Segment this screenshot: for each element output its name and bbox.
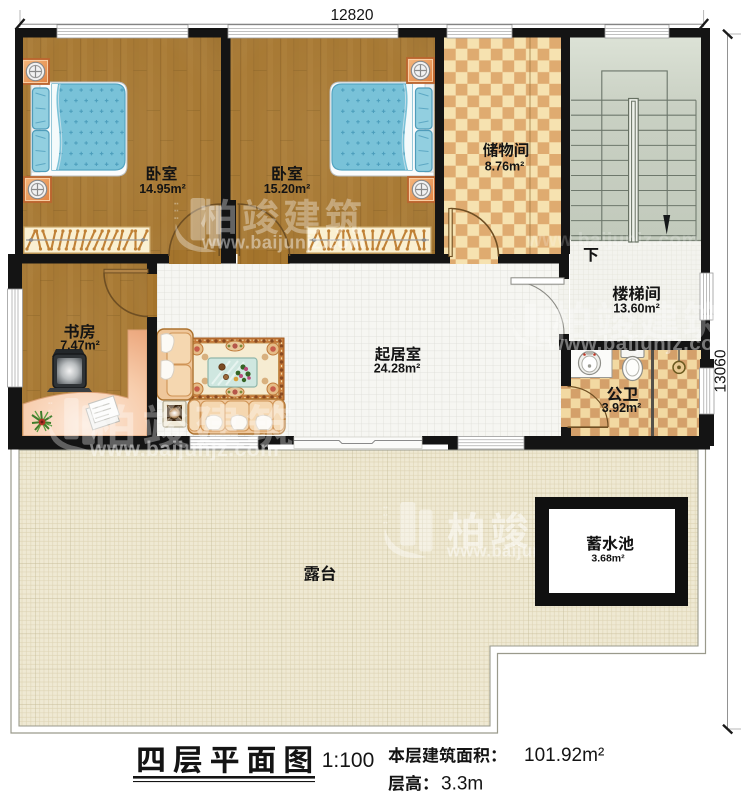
svg-text:www.baijunjz.com: www.baijunjz.com bbox=[201, 233, 365, 253]
svg-text:101.92m²: 101.92m² bbox=[524, 745, 604, 766]
svg-text:3.68m²: 3.68m² bbox=[591, 553, 625, 565]
svg-text:▪▪: ▪▪ bbox=[174, 200, 179, 207]
svg-text:12820: 12820 bbox=[330, 7, 373, 24]
svg-text:www.baijunjz.com: www.baijunjz.com bbox=[526, 230, 699, 251]
svg-text:www.baijunjz.com: www.baijunjz.com bbox=[547, 332, 733, 355]
svg-text:▪▪: ▪▪ bbox=[48, 400, 52, 407]
svg-text:1:100: 1:100 bbox=[322, 749, 375, 772]
svg-text:▪▪: ▪▪ bbox=[512, 317, 516, 323]
svg-text:14.95m²: 14.95m² bbox=[139, 182, 186, 196]
svg-text:▪▪: ▪▪ bbox=[383, 520, 388, 527]
svg-text:▪▪: ▪▪ bbox=[174, 215, 179, 222]
svg-text:13.60m²: 13.60m² bbox=[613, 301, 660, 315]
svg-text:8.76m²: 8.76m² bbox=[485, 159, 525, 173]
svg-text:3.3m: 3.3m bbox=[441, 774, 483, 795]
svg-text:▪▪: ▪▪ bbox=[48, 415, 52, 422]
svg-text:7.47m²: 7.47m² bbox=[60, 338, 100, 352]
svg-text:24.28m²: 24.28m² bbox=[374, 361, 421, 375]
svg-text:▪▪: ▪▪ bbox=[174, 208, 179, 215]
svg-text:www.baijunjz.com: www.baijunjz.com bbox=[89, 438, 279, 461]
svg-text:▪▪: ▪▪ bbox=[48, 407, 52, 414]
svg-text:3.92m²: 3.92m² bbox=[602, 401, 642, 415]
svg-text:15.20m²: 15.20m² bbox=[264, 182, 311, 196]
svg-text:▪▪: ▪▪ bbox=[383, 512, 388, 519]
svg-text:▪▪: ▪▪ bbox=[383, 505, 388, 512]
svg-text:13060: 13060 bbox=[712, 349, 729, 392]
